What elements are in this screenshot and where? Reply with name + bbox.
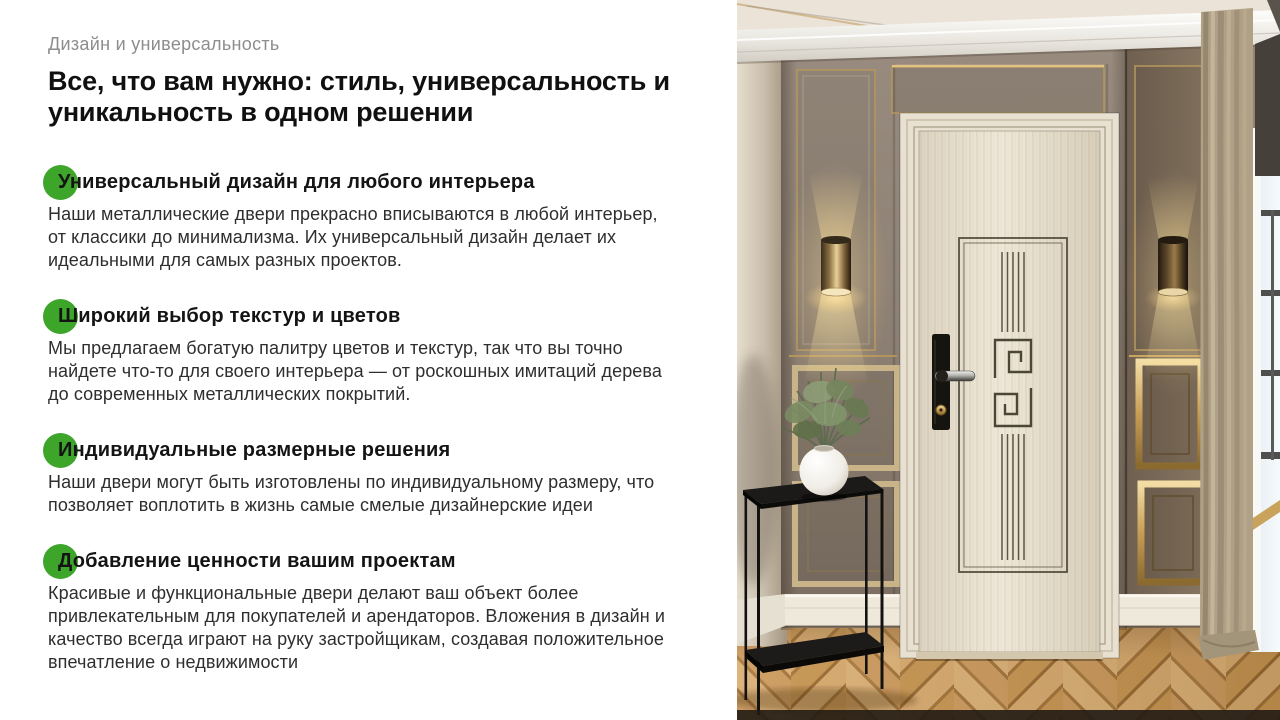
eyebrow-label: Дизайн и универсальность — [48, 34, 713, 55]
photo-bottom-edge — [737, 710, 1280, 720]
feature-title: Индивидуальные размерные решения — [48, 439, 713, 462]
feature-title: Универсальный дизайн для любого интерьер… — [48, 171, 713, 194]
door-threshold — [916, 652, 1103, 659]
window — [1250, 128, 1280, 652]
feature-title: Добавление ценности вашим проектам — [48, 550, 713, 573]
feature-custom-sizes: Индивидуальные размерные решения Наши дв… — [48, 439, 713, 517]
feature-body: Наши металлические двери прекрасно вписы… — [48, 203, 676, 272]
text-column: Дизайн и универсальность Все, что вам ну… — [48, 34, 713, 707]
feature-body: Наши двери могут быть изготовлены по инд… — [48, 471, 676, 517]
table-shadow — [737, 688, 917, 712]
feature-universal-design: Универсальный дизайн для любого интерьер… — [48, 171, 713, 272]
door — [900, 113, 1119, 660]
feature-body: Мы предлагаем богатую палитру цветов и т… — [48, 337, 676, 406]
feature-textures-colors: Широкий выбор текстур и цветов Мы предла… — [48, 305, 713, 406]
feature-added-value: Добавление ценности вашим проектам Краси… — [48, 550, 713, 674]
interior-door-photo — [737, 0, 1280, 720]
white-vase — [800, 447, 849, 496]
feature-body: Красивые и функциональные двери делают в… — [48, 582, 676, 674]
presentation-slide: Дизайн и универсальность Все, что вам ну… — [0, 0, 1280, 720]
feature-title: Широкий выбор текстур и цветов — [48, 305, 713, 328]
window-valance — [1255, 34, 1280, 176]
slide-title: Все, что вам нужно: стиль, универсальнос… — [48, 66, 693, 129]
interior-scene — [737, 0, 1280, 720]
